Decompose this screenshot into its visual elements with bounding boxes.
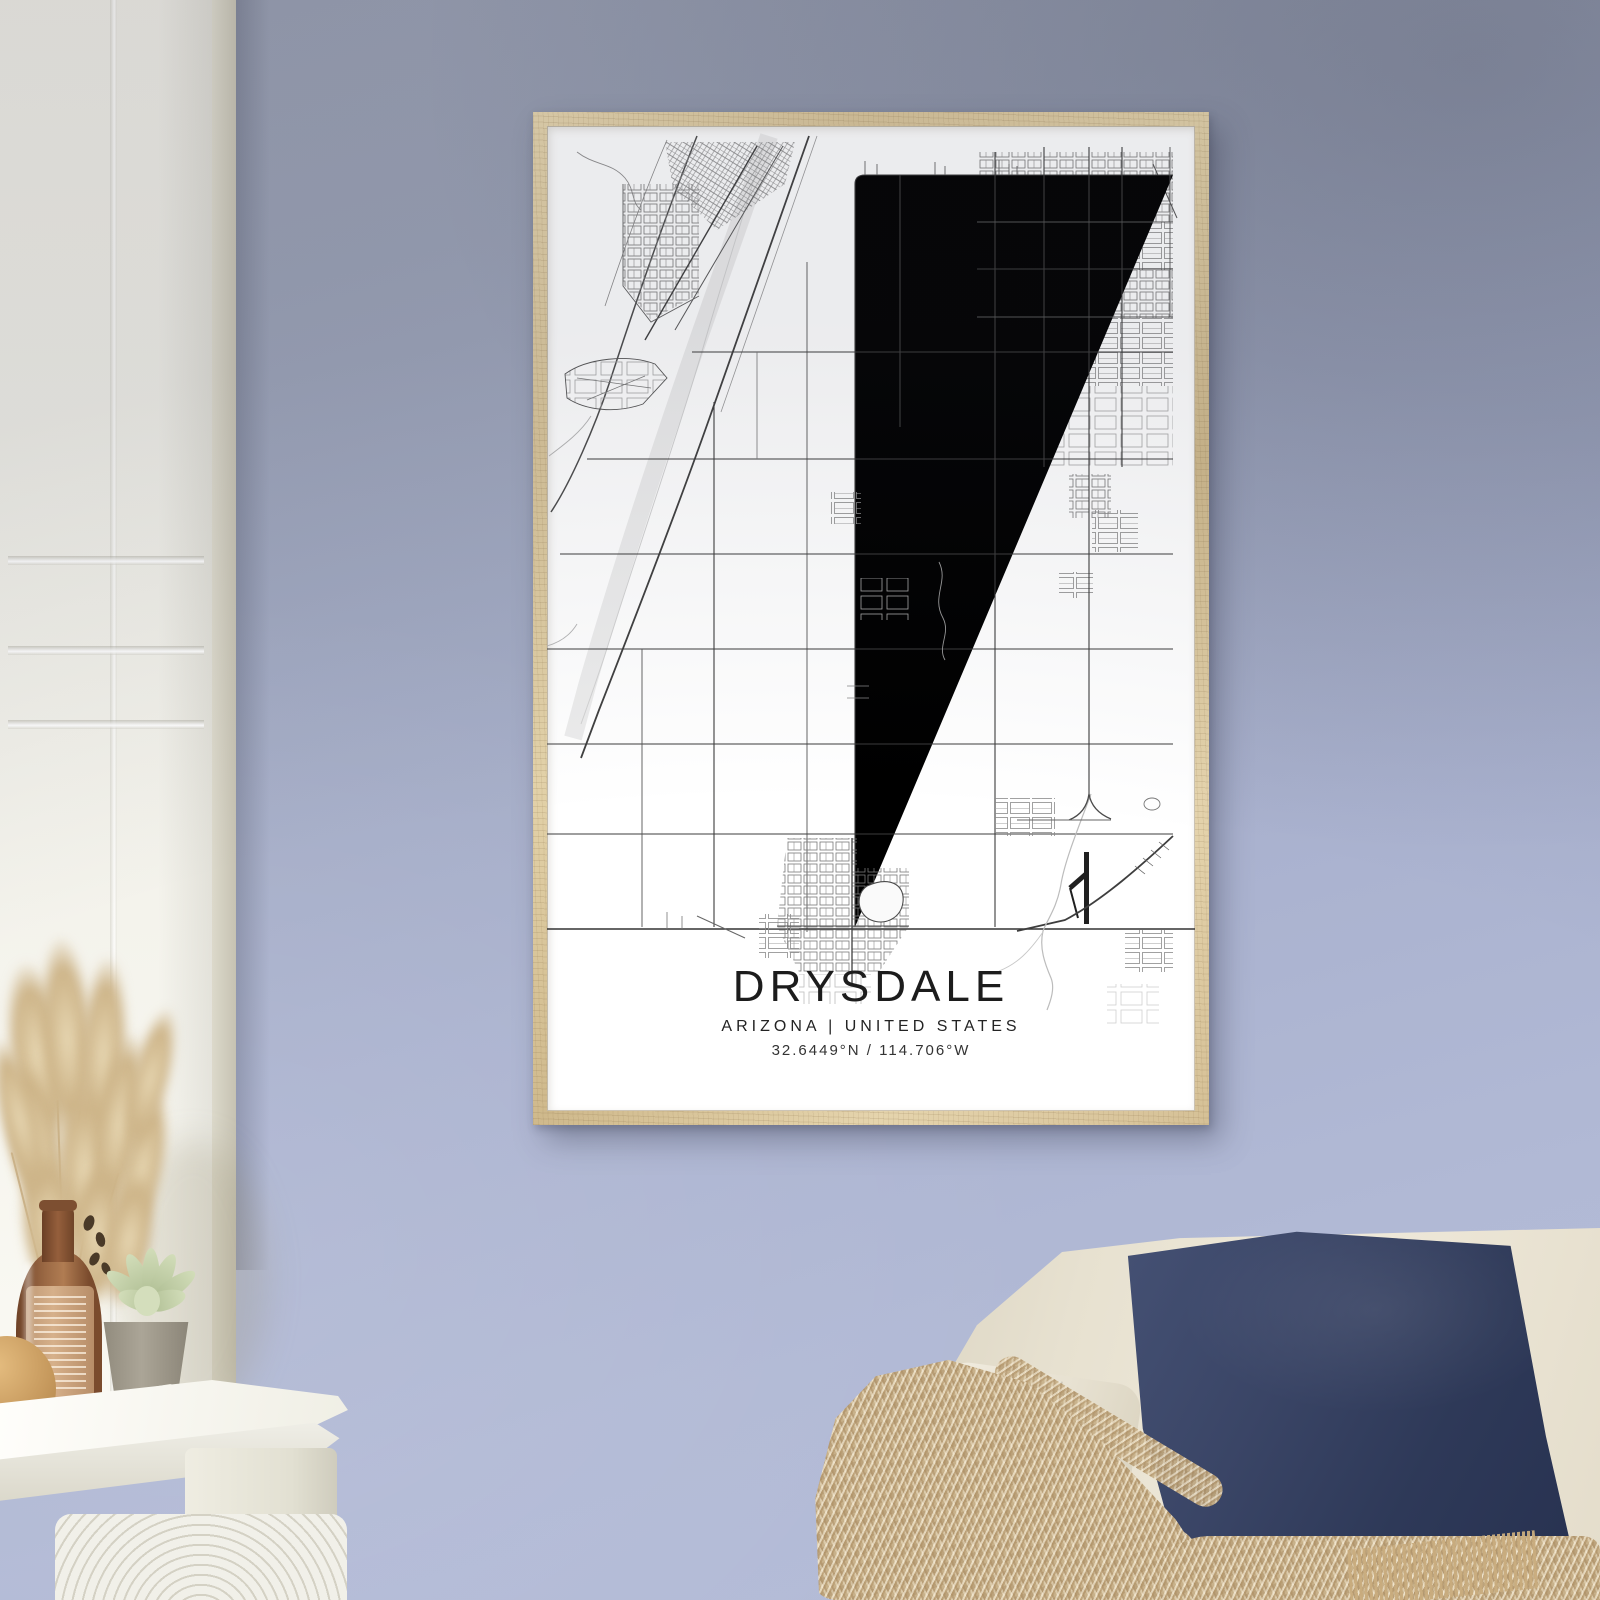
table-base-panel	[55, 1514, 347, 1600]
airport-runway	[1084, 852, 1089, 924]
door-cast-shadow	[236, 0, 270, 1270]
map-print: DRYSDALE ARIZONA | UNITED STATES 32.6449…	[547, 126, 1195, 1111]
bottle-neck	[42, 1206, 74, 1262]
framed-map-poster: DRYSDALE ARIZONA | UNITED STATES 32.6449…	[533, 112, 1209, 1125]
poster-title: DRYSDALE	[547, 962, 1195, 1012]
living-room-scene: DRYSDALE ARIZONA | UNITED STATES 32.6449…	[0, 0, 1600, 1600]
poster-coordinates: 32.6449°N / 114.706°W	[547, 1042, 1195, 1059]
door-groove	[8, 646, 204, 655]
bottle-lip	[39, 1200, 77, 1211]
door-groove	[8, 556, 204, 565]
poster-subtitle: ARIZONA | UNITED STATES	[547, 1018, 1195, 1036]
door-groove	[8, 720, 204, 729]
